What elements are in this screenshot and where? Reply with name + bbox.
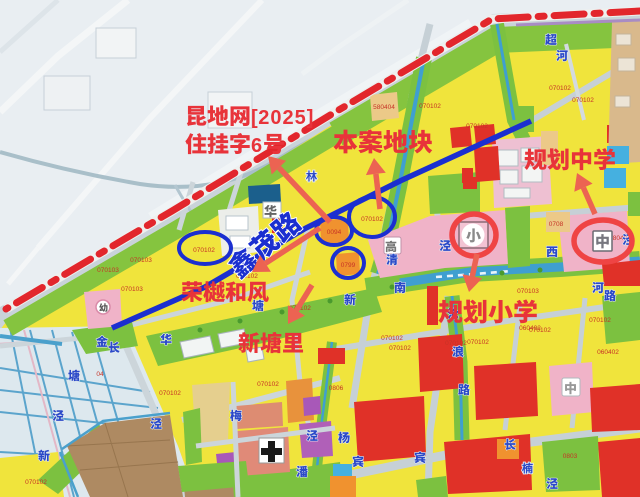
- svg-text:070102: 070102: [389, 345, 411, 352]
- svg-text:070102: 070102: [419, 103, 441, 110]
- svg-text:070103: 070103: [517, 288, 539, 295]
- svg-text:070103: 070103: [121, 286, 143, 293]
- svg-text:070103: 070103: [130, 257, 152, 264]
- svg-text:0799: 0799: [341, 262, 356, 269]
- svg-text:2: 2: [283, 107, 294, 129]
- svg-text:0: 0: [270, 107, 281, 129]
- svg-text:070102: 070102: [159, 390, 181, 397]
- svg-text:070102: 070102: [589, 317, 611, 324]
- svg-text:070103: 070103: [97, 267, 119, 274]
- svg-text:林: 林: [306, 169, 317, 183]
- svg-text:0094: 0094: [327, 229, 342, 236]
- svg-text:[: [: [251, 107, 258, 129]
- svg-text:070102: 070102: [257, 381, 279, 388]
- svg-text:060402: 060402: [519, 325, 541, 332]
- svg-text:070102: 070102: [466, 123, 488, 130]
- svg-text:070102: 070102: [381, 335, 403, 342]
- svg-text:070102: 070102: [193, 247, 215, 254]
- svg-text:04: 04: [96, 371, 104, 378]
- svg-text:6: 6: [251, 135, 262, 157]
- svg-text:0708: 0708: [549, 221, 564, 228]
- svg-text:070102: 070102: [549, 85, 571, 92]
- svg-text:0806: 0806: [329, 385, 344, 392]
- svg-text:580404: 580404: [373, 104, 395, 111]
- svg-text:0803: 0803: [563, 453, 578, 460]
- svg-text:060402: 060402: [597, 349, 619, 356]
- svg-text:]: ]: [307, 107, 314, 129]
- svg-text:070102: 070102: [467, 339, 489, 346]
- svg-text:070102: 070102: [572, 97, 594, 104]
- svg-text:070102: 070102: [361, 216, 383, 223]
- svg-text:070102: 070102: [445, 340, 467, 347]
- svg-text:5: 5: [295, 107, 306, 129]
- svg-text:楠: 楠: [522, 461, 533, 475]
- svg-text:2: 2: [258, 107, 269, 129]
- svg-text:070102: 070102: [25, 479, 47, 486]
